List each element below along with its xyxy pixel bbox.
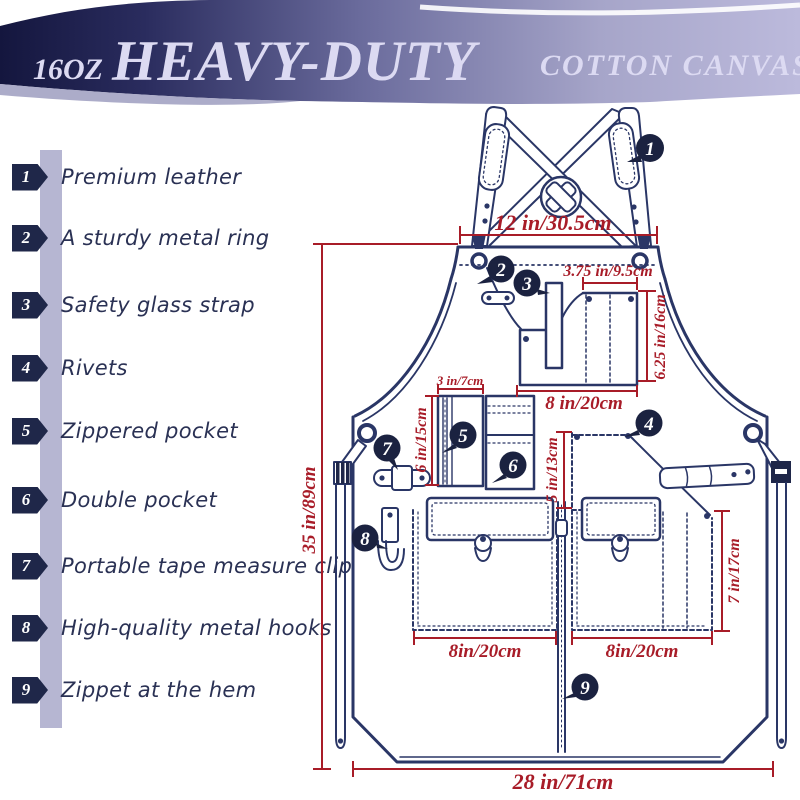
- feature-item-3: 3 Safety glass strap: [12, 290, 255, 320]
- chest-top-label: 3.75 in/9.5cm: [562, 263, 652, 280]
- feature-label-6: Double pocket: [61, 488, 217, 512]
- chest-bottom-label: 8 in/20cm: [545, 393, 623, 414]
- neck-seam-curve-right: [562, 293, 583, 318]
- chest-pocket: [520, 293, 637, 385]
- lower-left-label: 8in/20cm: [449, 641, 522, 662]
- feature-item-1: 1 Premium leather: [12, 162, 241, 192]
- callout-2-num: 2: [495, 260, 506, 281]
- feature-label-4: Rivets: [61, 356, 128, 380]
- callout-3: 3: [514, 270, 551, 297]
- right-bottom-pocket: [572, 498, 712, 630]
- callout-9: 9: [562, 674, 599, 701]
- feature-badge-1: 1: [12, 164, 48, 191]
- infographic-canvas: 16OZ HEAVY-DUTY COTTON CANVAS 1 Premium …: [0, 0, 800, 800]
- feature-badge-4-num: 4: [22, 358, 31, 378]
- feature-badge-7-num: 7: [22, 556, 31, 576]
- callout-7: 7: [374, 435, 401, 471]
- feature-badge-8: 8: [12, 615, 48, 642]
- feature-item-8: 8 High-quality metal hooks: [12, 613, 332, 643]
- feature-badge-5-num: 5: [22, 421, 31, 441]
- left-side-ring: [359, 425, 375, 441]
- callout-7-num: 7: [382, 439, 393, 460]
- neck-width-label: 12 in/30.5cm: [494, 210, 611, 235]
- feature-label-5: Zippered pocket: [61, 419, 238, 443]
- feature-label-9: Zippet at the hem: [61, 678, 256, 702]
- feature-badge-2: 2: [12, 225, 48, 252]
- callout-4: 4: [624, 410, 663, 438]
- callout-4-num: 4: [643, 414, 654, 435]
- feature-badge-5: 5: [12, 418, 48, 445]
- safety-glass-strap: [546, 283, 562, 368]
- apron-diagram: 12 in/30.5cm 3.75 in/9.5cm 6.25 in/16cm …: [300, 95, 800, 800]
- feature-badge-9: 9: [12, 677, 48, 704]
- feature-badge-1-num: 1: [22, 167, 31, 187]
- zip-top-label: 3 in/7cm: [436, 373, 484, 388]
- callout-9-num: 9: [580, 678, 590, 699]
- banner-title-text: HEAVY-DUTY: [111, 30, 481, 93]
- left-bottom-pocket: [413, 498, 557, 630]
- feature-label-3: Safety glass strap: [61, 293, 255, 317]
- bib-rivet-strap: [482, 292, 514, 304]
- feature-badge-6: 6: [12, 487, 48, 514]
- cross-back-straps: [472, 107, 651, 268]
- banner-subtitle-text: COTTON CANVAS: [540, 49, 800, 82]
- left-shoulder-pad: [478, 123, 511, 192]
- feature-item-5: 5 Zippered pocket: [12, 416, 238, 446]
- feature-badge-7: 7: [12, 553, 48, 580]
- lower-right-label: 8in/20cm: [606, 641, 679, 662]
- feature-badge-2-num: 2: [22, 228, 31, 248]
- right-side-ring: [745, 425, 761, 441]
- callout-6-num: 6: [508, 456, 518, 477]
- zip-side-label: 6 in/15cm: [413, 407, 430, 472]
- feature-label-2: A sturdy metal ring: [61, 226, 269, 250]
- lower-side-label: 7 in/17cm: [726, 538, 743, 603]
- feature-badge-9-num: 9: [22, 680, 31, 700]
- feature-label-1: Premium leather: [61, 165, 241, 189]
- callout-1-num: 1: [645, 139, 655, 160]
- feature-badge-6-num: 6: [22, 490, 31, 510]
- left-tie-strap: [336, 484, 345, 748]
- right-armhole-seam: [660, 283, 757, 421]
- right-tie-strap: [777, 483, 786, 748]
- feature-badge-3: 3: [12, 292, 48, 319]
- feature-badge-4: 4: [12, 355, 48, 382]
- feature-item-2: 2 A sturdy metal ring: [12, 223, 269, 253]
- callout-3-num: 3: [521, 274, 532, 295]
- hem-zipper: [556, 502, 567, 752]
- metal-hook: [378, 508, 404, 570]
- feature-item-4: 4 Rivets: [12, 353, 128, 383]
- feature-badge-3-num: 3: [22, 295, 31, 315]
- hem-width-label: 28 in/71cm: [512, 769, 614, 794]
- center-gap-label: 5 in/13cm: [544, 437, 561, 502]
- chest-side-label: 6.25 in/16cm: [652, 294, 669, 379]
- feature-badge-8-num: 8: [22, 618, 31, 638]
- banner-weight-text: 16OZ: [33, 53, 103, 86]
- title-banner: 16OZ HEAVY-DUTY COTTON CANVAS: [0, 0, 800, 110]
- feature-item-9: 9 Zippet at the hem: [12, 675, 256, 705]
- callout-8-num: 8: [360, 529, 370, 550]
- feature-label-8: High-quality metal hooks: [61, 616, 332, 640]
- pen-holder-strap: [660, 464, 755, 489]
- feature-item-6: 6 Double pocket: [12, 485, 217, 515]
- callout-5-num: 5: [458, 426, 468, 447]
- apron-length-label: 35 in/89cm: [300, 466, 320, 554]
